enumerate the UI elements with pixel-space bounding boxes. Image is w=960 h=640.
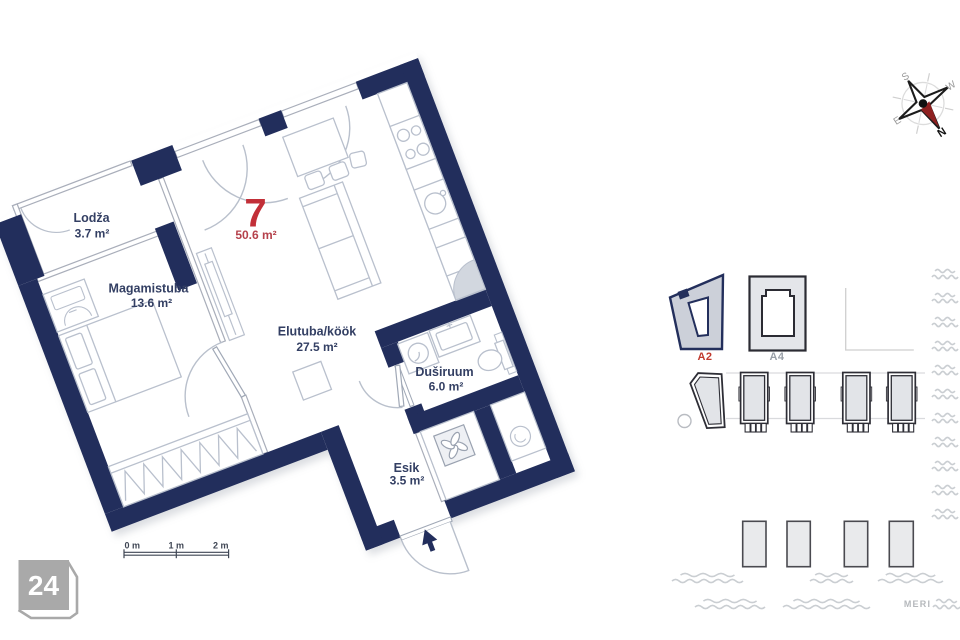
- svg-text:13.6 m²: 13.6 m²: [131, 296, 172, 310]
- svg-text:24: 24: [28, 570, 60, 601]
- svg-text:3.7 m²: 3.7 m²: [75, 227, 110, 241]
- svg-text:50.6 m²: 50.6 m²: [235, 228, 276, 242]
- svg-text:27.5 m²: 27.5 m²: [296, 340, 337, 354]
- svg-text:MERI: MERI: [904, 599, 931, 609]
- svg-text:N: N: [935, 126, 948, 140]
- svg-text:3.5 m²: 3.5 m²: [390, 474, 425, 488]
- svg-text:A2: A2: [697, 351, 712, 363]
- svg-text:6.0 m²: 6.0 m²: [429, 380, 464, 394]
- svg-text:Elutuba/köök: Elutuba/köök: [278, 325, 357, 339]
- svg-text:Magamistuba: Magamistuba: [109, 282, 190, 296]
- svg-text:Duširuum: Duširuum: [415, 365, 473, 379]
- svg-text:W: W: [944, 79, 958, 94]
- svg-text:2 m: 2 m: [213, 540, 229, 550]
- svg-text:0 m: 0 m: [125, 540, 141, 550]
- svg-text:A4: A4: [769, 351, 784, 363]
- svg-text:1 m: 1 m: [169, 540, 185, 550]
- svg-text:Lodža: Lodža: [73, 211, 110, 225]
